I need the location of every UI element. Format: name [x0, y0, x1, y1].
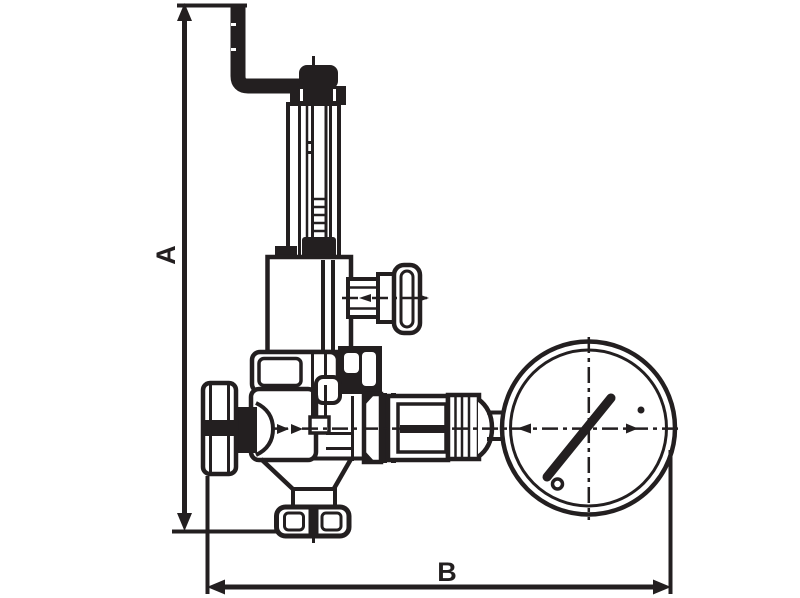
collar-slit [300, 89, 303, 101]
bottom-flange-center [309, 507, 319, 536]
gauge-dot [638, 407, 645, 414]
centerline-arrow-icon [418, 294, 429, 302]
pipe-weld-mark [231, 48, 236, 51]
valve-assembly [203, 6, 505, 543]
dim-a-arrow-down-icon [177, 513, 192, 531]
dim-b-arrow-right-icon [653, 580, 671, 595]
chamber-outline [268, 257, 352, 352]
union-tail [448, 395, 479, 459]
valve-body [251, 385, 381, 509]
dimension-a-label: A [151, 245, 181, 265]
bottom-flange [277, 507, 350, 543]
chamber-stripe [321, 260, 325, 350]
cap-body [299, 65, 338, 89]
stem-nut [310, 417, 329, 433]
spring-tube [288, 104, 339, 258]
top-outlet-pipe [231, 6, 303, 86]
inlet-flange-band [203, 420, 236, 436]
side-tap [342, 265, 431, 333]
tube-notch [306, 151, 311, 154]
outlet-pipe-path [238, 6, 303, 86]
drawing-canvas: A [0, 0, 800, 598]
pipe-weld-mark [231, 23, 236, 26]
body-taper-left [261, 459, 296, 492]
gauge-stop-pin [553, 479, 563, 489]
tube-notch [306, 141, 311, 144]
flange-fitting [316, 377, 340, 403]
flange-window [362, 352, 376, 386]
inlet-stem [235, 407, 257, 453]
dimension-b-label: B [437, 557, 457, 587]
valve-technical-drawing: A [0, 0, 800, 598]
chamber-stripe [331, 260, 335, 350]
collar-slit [333, 89, 336, 101]
dim-b-arrow-left-icon [207, 580, 225, 595]
flange-window [344, 353, 359, 373]
